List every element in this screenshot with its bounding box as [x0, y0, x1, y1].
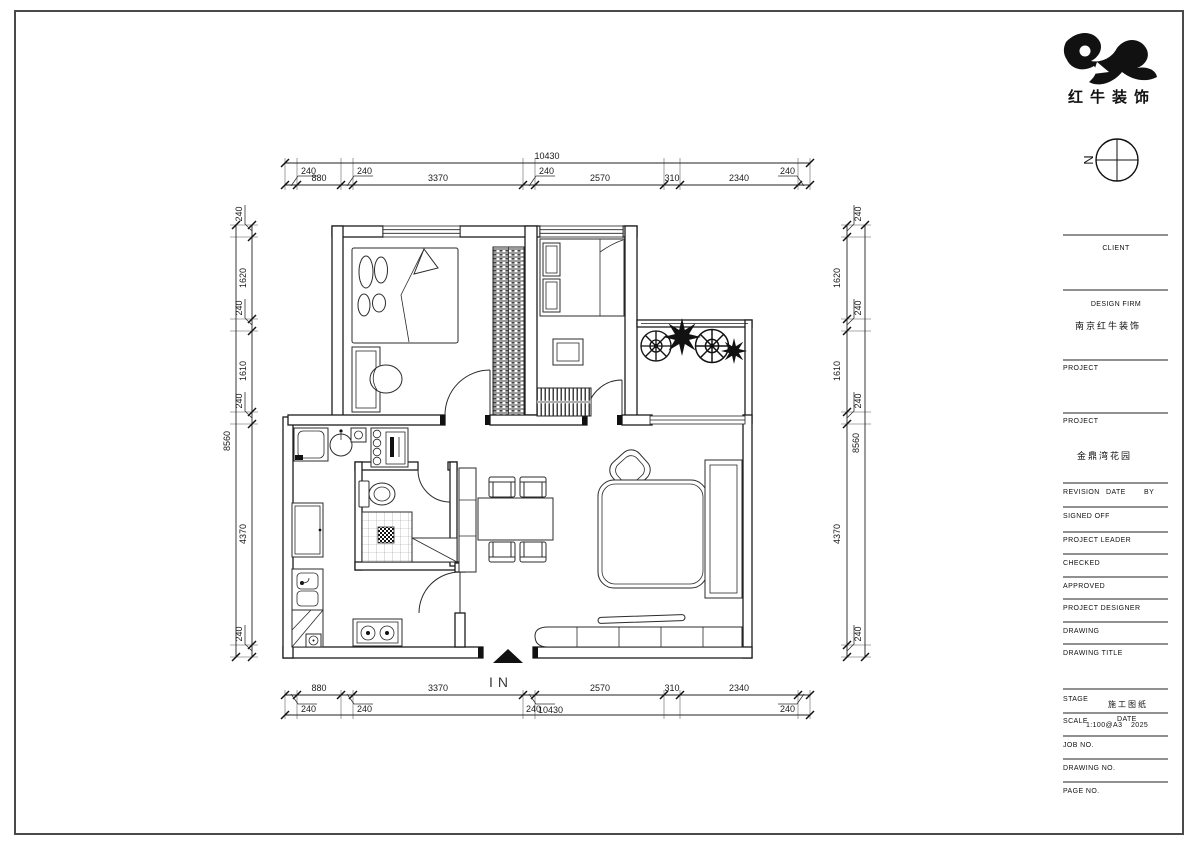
scale-value: 1:100@A3 [1086, 722, 1122, 729]
dim-right-240: 240 [853, 300, 863, 315]
signed-off-label: SIGNED OFF [1063, 513, 1110, 520]
dining-chair [520, 477, 546, 497]
dim-right-seg: 4370 [832, 524, 842, 544]
shower-screen [412, 538, 457, 562]
project-leader-label: PROJECT LEADER [1063, 537, 1131, 544]
client-label: CLIENT [1102, 245, 1130, 252]
dim-bottom-240: 240 [301, 704, 316, 714]
dim-left-240: 240 [234, 206, 244, 221]
dim-bottom-240: 240 [357, 704, 372, 714]
entrance-arrow-icon [493, 649, 523, 663]
dining-chair [520, 542, 546, 562]
tv [598, 614, 685, 623]
dim-top-total: 10430 [534, 151, 559, 161]
bedroom2-desk [553, 339, 583, 365]
water-heater [371, 428, 408, 467]
dining-chair [489, 542, 515, 562]
dim-top-240: 240 [539, 166, 554, 176]
design-firm-value: 南京红牛装饰 [1075, 320, 1141, 331]
dim-top-240: 240 [301, 166, 316, 176]
dim-bottom-total: 10430 [538, 705, 563, 715]
wash-basin [330, 429, 352, 456]
project-value: 金鼎湾花园 [1077, 450, 1132, 461]
dining-chair [489, 477, 515, 497]
soap-box [351, 428, 366, 442]
dim-right-seg: 1610 [832, 361, 842, 381]
bedroom1-wardrobe [493, 247, 524, 415]
revision-label: REVISION [1063, 489, 1100, 496]
date-label: DATE [1106, 489, 1126, 496]
page-no-label: PAGE NO. [1063, 788, 1100, 795]
design-firm-label: DESIGN FIRM [1091, 301, 1141, 308]
dim-left-240: 240 [234, 393, 244, 408]
bedroom1-door [445, 370, 490, 415]
bedroom2-door [587, 380, 622, 415]
dim-right-240: 240 [853, 206, 863, 221]
dining-table [478, 498, 553, 540]
floor-drain [306, 634, 321, 647]
dim-left-seg: 1610 [238, 361, 248, 381]
sheet-border [15, 11, 1183, 834]
bedroom1-chair [370, 365, 402, 393]
dim-left-total: 8560 [222, 431, 232, 451]
north-label: N [1081, 155, 1096, 164]
bedroom2-bed [540, 239, 624, 316]
stage-value: 施工图纸 [1108, 699, 1148, 709]
company-logo-icon [1064, 33, 1157, 84]
bedroom1-bed [352, 248, 458, 343]
dim-top-seg: 2570 [590, 173, 610, 183]
dim-top-240: 240 [780, 166, 795, 176]
dim-bottom-seg: 2570 [590, 683, 610, 693]
shower-area [362, 512, 412, 562]
dim-right-240: 240 [853, 393, 863, 408]
sideboard [459, 468, 476, 572]
bedroom2-cabinet [537, 388, 591, 416]
kitchen-counter [292, 503, 323, 557]
gas-stove [353, 619, 402, 646]
checked-label: CHECKED [1063, 560, 1100, 567]
approved-label: APPROVED [1063, 583, 1105, 590]
dim-top-seg: 3370 [428, 173, 448, 183]
drawing-label: DRAWING [1063, 628, 1099, 635]
bedroom1-window [383, 226, 460, 237]
entrance-marker: IN [489, 649, 523, 690]
company-name: 红牛装饰 [1068, 88, 1156, 106]
bedroom2-window [540, 226, 623, 237]
dim-top-seg: 310 [664, 173, 679, 183]
project-designer-label: PROJECT DESIGNER [1063, 605, 1140, 612]
dim-left-240: 240 [234, 300, 244, 315]
kitchen-door [419, 572, 460, 613]
bathroom-door [418, 470, 450, 502]
drawing-no-label: DRAWING NO. [1063, 765, 1115, 772]
washing-machine [294, 428, 328, 461]
stage-label: STAGE [1063, 696, 1088, 703]
dim-bottom-240: 240 [780, 704, 795, 714]
north-arrow-icon: N [1081, 139, 1138, 181]
dim-left-seg: 4370 [238, 524, 248, 544]
title-block: CLIENT DESIGN FIRM 南京红牛装饰 PROJECT PROJEC… [1063, 235, 1168, 795]
dim-top-240: 240 [357, 166, 372, 176]
project-label: PROJECT [1063, 418, 1099, 425]
entrance-label: IN [489, 674, 513, 690]
dim-left-seg: 1620 [238, 268, 248, 288]
sofa [598, 460, 742, 598]
kitchen-sink [292, 569, 323, 610]
dim-bottom-seg: 310 [664, 683, 679, 693]
date-value: 2025 [1131, 722, 1148, 729]
scale-label: SCALE [1063, 718, 1088, 725]
floor-plan-sheet: IN [0, 0, 1200, 852]
tv-cabinet [535, 627, 742, 647]
job-no-label: JOB NO. [1063, 742, 1094, 749]
by-label: BY [1144, 489, 1154, 496]
dim-bottom-seg: 2340 [729, 683, 749, 693]
dim-top-seg: 2340 [729, 173, 749, 183]
bathroom-toilet [359, 481, 395, 507]
dim-right-seg: 1620 [832, 268, 842, 288]
dim-bottom-seg: 880 [311, 683, 326, 693]
dim-right-240: 240 [853, 626, 863, 641]
project-label: PROJECT [1063, 365, 1099, 372]
dim-bottom-seg: 3370 [428, 683, 448, 693]
dim-left-240: 240 [234, 626, 244, 641]
drawing-title-label: DRAWING TITLE [1063, 650, 1123, 657]
balcony-window [650, 416, 745, 424]
dim-right-total: 8560 [851, 433, 861, 453]
